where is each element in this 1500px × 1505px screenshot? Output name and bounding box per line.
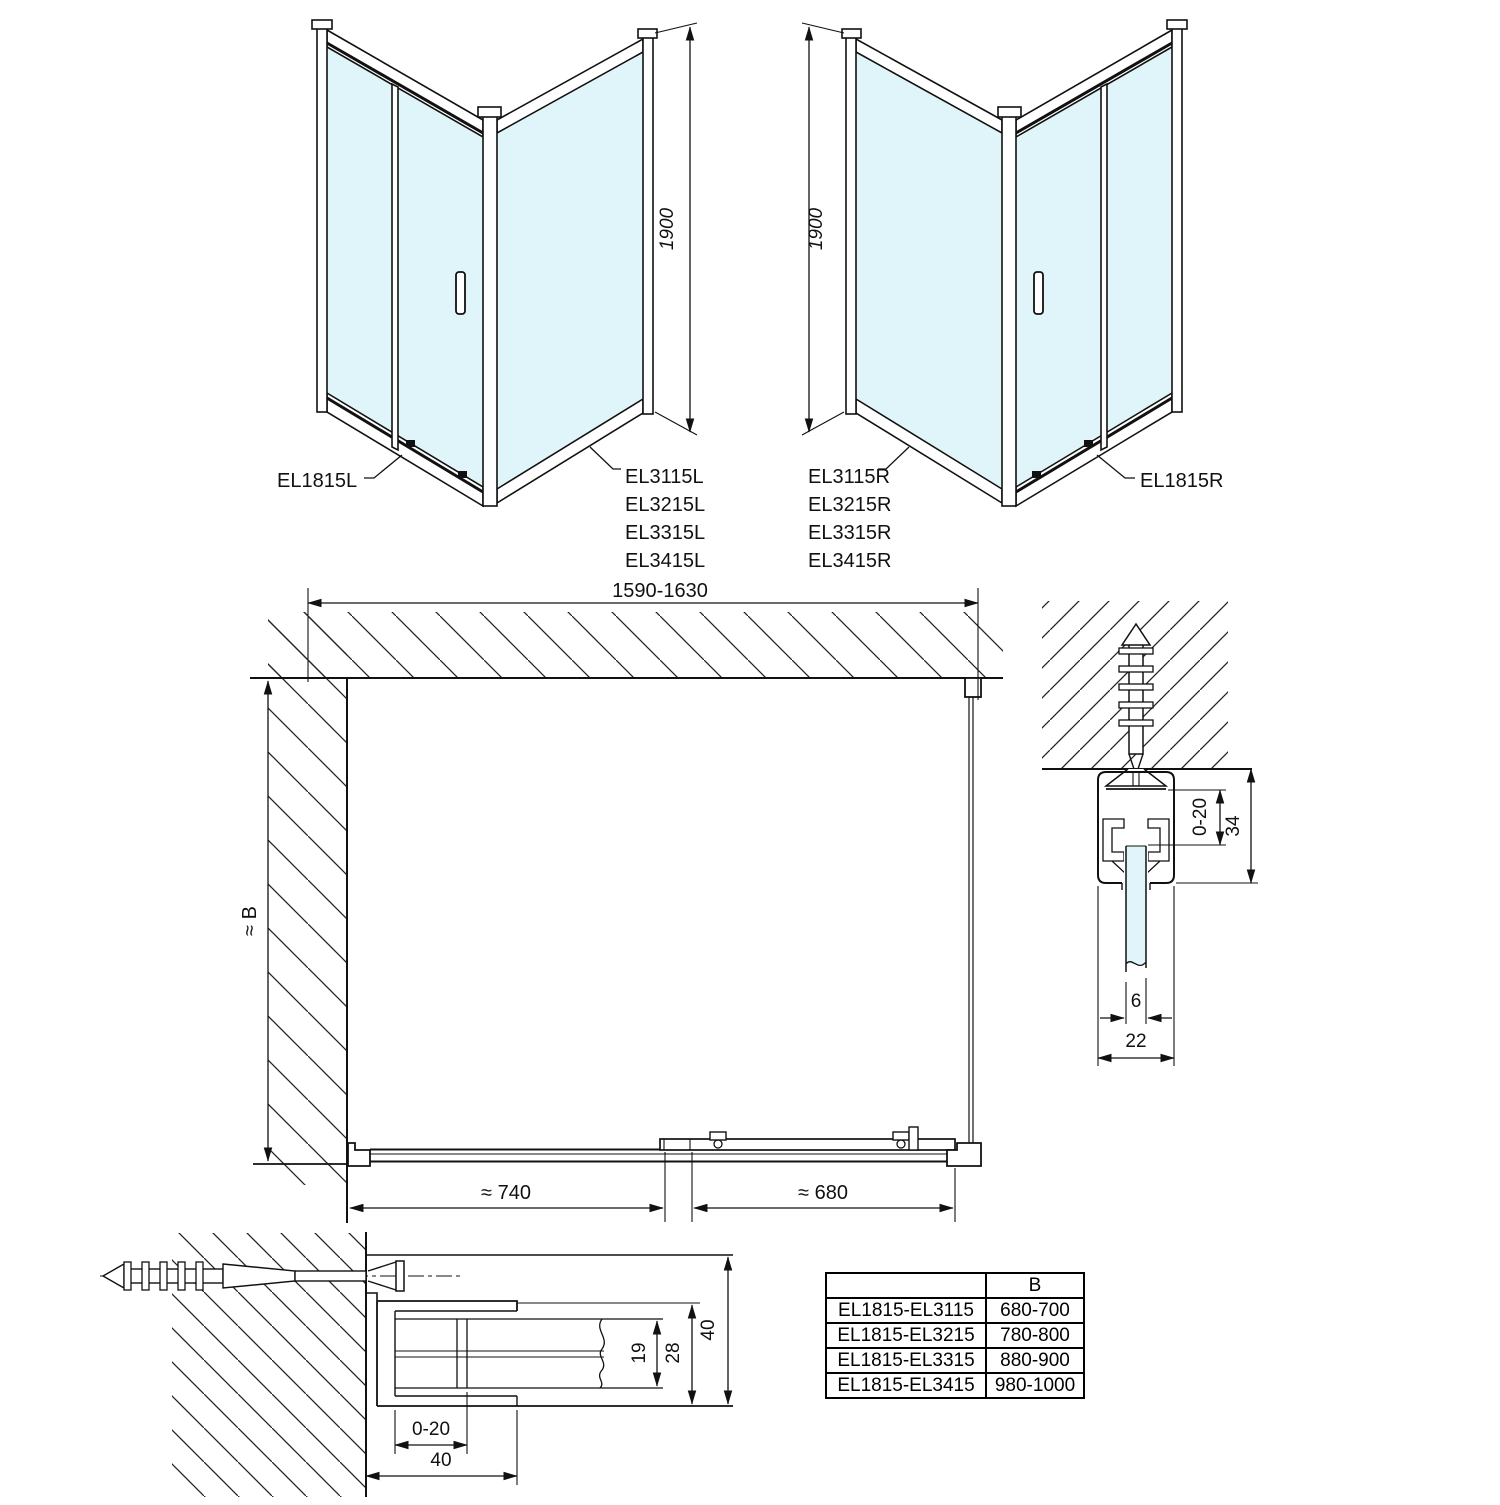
anchor-dowel [1129,644,1143,754]
b-range: 980-1000 [986,1373,1084,1398]
b-range: 880-900 [986,1348,1084,1373]
wall-profile-plan [348,1143,370,1166]
table-header-row: B [826,1273,1084,1298]
width-dim-label: 1590-1630 [612,580,708,602]
door-model-label-right: EL1815R [1140,470,1223,492]
channel-depth-label: 28 [663,1342,684,1363]
mount-width-label: 40 [430,1450,451,1471]
adjustment-label: 0-20 [412,1419,450,1440]
profile-width-label: 22 [1125,1031,1146,1052]
glass-pocket-label: 19 [629,1342,650,1363]
wall-bracket [965,678,981,697]
table-row: EL1815-EL3215 780-800 [826,1323,1084,1348]
profile-width-label: 40 [698,1319,719,1340]
glass-break-line [600,1319,605,1388]
door-model-label-left: EL1815L [277,470,357,492]
panel-model-label: EL3115L [625,466,704,488]
height-dim-label-right: 1900 [806,207,827,250]
table-corner-cell [826,1273,986,1298]
anchor-dowel [124,1269,223,1283]
height-dim-label-left: 1900 [657,207,678,250]
glass-thickness-label: 6 [1131,991,1142,1012]
table-row: EL1815-EL3115 680-700 [826,1298,1084,1323]
model-combination: EL1815-EL3415 [826,1373,986,1398]
technical-drawing-sheet: 1900 EL1815L EL3115L EL3215L EL3315L EL3… [0,0,1500,1500]
glass-clip [1103,819,1124,861]
adjustment-label: 0-20 [1190,798,1211,836]
screw-head [396,1261,404,1291]
panel-model-label: EL3415L [625,550,705,572]
model-combination: EL1815-EL3315 [826,1348,986,1373]
panel-model-label: EL3215R [808,494,891,516]
panel-model-label: EL3315L [625,522,705,544]
depth-dim-label: ≈ B [239,906,261,936]
fixed-dim-label: ≈ 740 [481,1182,531,1204]
table-row: EL1815-EL3315 880-900 [826,1348,1084,1373]
drawing-canvas: 1900 EL1815L EL3115L EL3215L EL3315L EL3… [0,0,1500,1500]
wall-profile-section-detail: 6 22 0-20 34 [1042,601,1258,1066]
b-range: 780-800 [986,1323,1084,1348]
door-dim-label: ≈ 680 [798,1182,848,1204]
roller-carriage [710,1132,726,1140]
glass-panel-edge [395,1351,604,1357]
profile-height-label: 34 [1223,815,1244,837]
panel-model-label: EL3415R [808,550,891,572]
handle-plan [909,1127,918,1150]
isometric-right-drawing: 1900 EL1815R EL3115R EL3215R EL3315R EL3… [802,20,1223,572]
left-wall-hatch [268,612,347,1185]
roller-carriage [893,1132,909,1140]
b-range: 680-700 [986,1298,1084,1323]
floor-profile-section-detail: 0-20 40 19 28 40 [100,1232,733,1497]
top-wall-hatch [268,612,1003,678]
glass-pocket [395,1319,663,1388]
side-panel-plan [969,697,973,1146]
channel-outline [377,1301,517,1406]
glass-clip [1148,819,1169,861]
model-combination: EL1815-EL3215 [826,1323,986,1348]
plan-view: 1590-1630 ≈ B ≈ 740 ≈ 680 [239,580,1003,1223]
isometric-left-drawing: 1900 EL1815L EL3115L EL3215L EL3315L EL3… [277,20,705,572]
glass-panel [1126,846,1146,964]
panel-model-label: EL3215L [625,494,705,516]
table-header-b: B [986,1273,1084,1298]
panel-model-label: EL3115R [808,466,890,488]
model-combination: EL1815-EL3115 [826,1298,986,1323]
size-table: B EL1815-EL3115 680-700 EL1815-EL3215 78… [825,1272,1085,1399]
panel-model-label: EL3315R [808,522,891,544]
table-row: EL1815-EL3415 980-1000 [826,1373,1084,1398]
